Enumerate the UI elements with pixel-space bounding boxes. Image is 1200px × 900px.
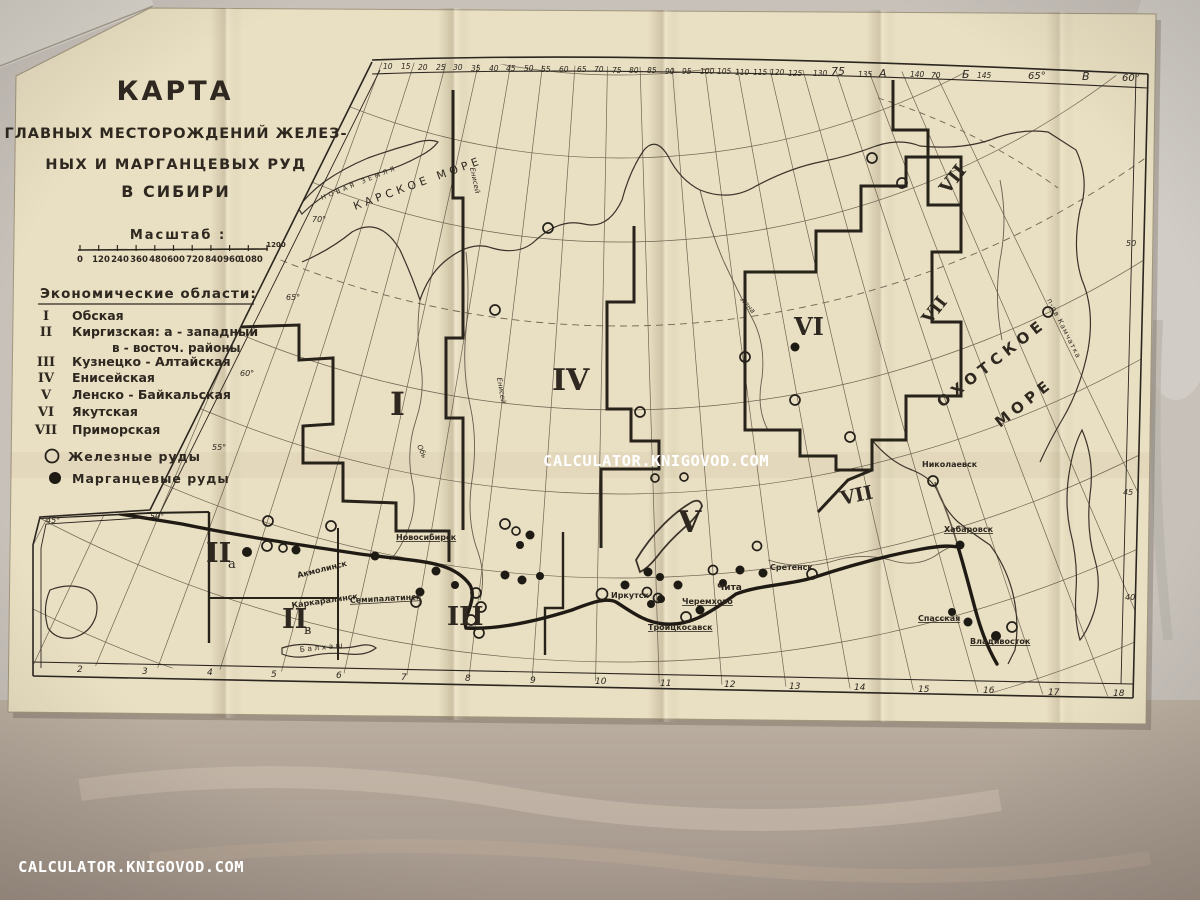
map-photo-svg: 10 15 20 25 30 35 40 45 50 55 60 65 70 7… — [0, 0, 1200, 900]
photo-vignette — [0, 0, 1200, 900]
watermark-corner: CALCULATOR.KNIGOVOD.COM — [18, 858, 244, 876]
watermark-center: CALCULATOR.KNIGOVOD.COM — [543, 452, 769, 470]
photo-of-folded-map: 10 15 20 25 30 35 40 45 50 55 60 65 70 7… — [0, 0, 1200, 900]
